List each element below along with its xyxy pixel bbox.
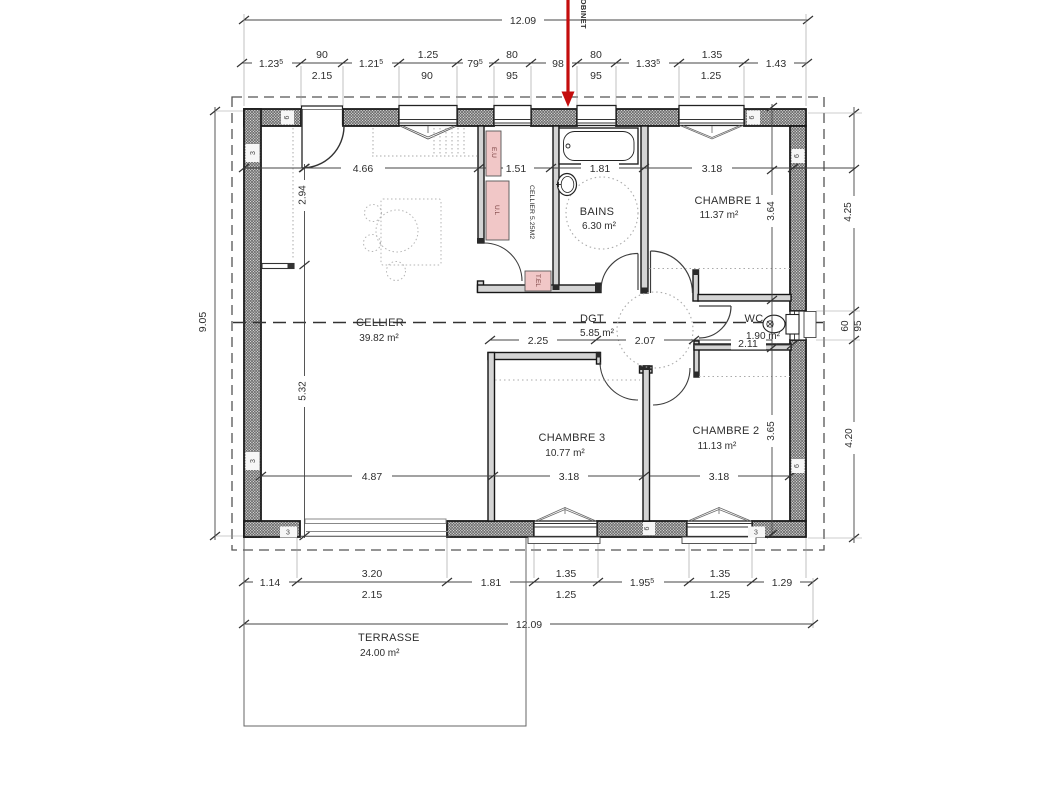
svg-text:1.90 m²: 1.90 m² [746,331,781,342]
svg-text:6: 6 [794,154,801,158]
svg-text:80: 80 [506,49,518,61]
svg-text:95: 95 [590,70,602,82]
svg-text:12.09: 12.09 [516,619,542,631]
svg-text:WC: WC [745,313,764,325]
svg-text:4.87: 4.87 [362,471,383,483]
svg-text:DGT: DGT [580,313,604,325]
svg-text:1.25: 1.25 [701,70,722,82]
svg-text:95: 95 [853,320,864,332]
svg-text:11.37 m²: 11.37 m² [700,210,739,221]
svg-text:9.05: 9.05 [197,312,209,333]
svg-text:6.30 m²: 6.30 m² [582,221,617,232]
svg-text:3.65: 3.65 [766,421,777,441]
svg-text:3.18: 3.18 [559,471,580,483]
svg-text:CELLIER 5.25M2: CELLIER 5.25M2 [528,185,535,239]
svg-text:24.00 m²: 24.00 m² [360,648,400,659]
svg-text:2.07: 2.07 [635,335,656,347]
svg-text:3.20: 3.20 [362,568,383,580]
svg-text:90: 90 [421,70,433,82]
svg-text:6: 6 [284,115,291,119]
svg-text:3.18: 3.18 [702,163,723,175]
svg-text:3: 3 [250,459,257,463]
svg-text:CELLIER: CELLIER [356,317,404,329]
svg-text:1.43: 1.43 [766,58,787,70]
svg-text:98: 98 [552,58,564,70]
svg-text:90: 90 [316,49,328,61]
svg-text:CHAMBRE 3: CHAMBRE 3 [539,432,606,444]
svg-text:95: 95 [506,70,518,82]
svg-text:4.25: 4.25 [843,202,854,222]
svg-text:6: 6 [644,526,651,530]
svg-text:12.09: 12.09 [510,15,536,27]
svg-text:6: 6 [794,464,801,468]
svg-text:1.25: 1.25 [710,589,731,601]
svg-text:5.32: 5.32 [298,381,309,401]
svg-text:2.94: 2.94 [298,185,309,205]
svg-text:ROBINET: ROBINET [579,0,588,29]
svg-text:CHAMBRE 1: CHAMBRE 1 [695,195,762,207]
svg-text:3: 3 [286,530,290,537]
svg-text:2.15: 2.15 [312,70,333,82]
svg-text:10.77 m²: 10.77 m² [545,448,585,459]
svg-text:5.85 m²: 5.85 m² [580,328,615,339]
svg-text:11.13 m²: 11.13 m² [698,441,737,452]
svg-text:80: 80 [590,49,602,61]
svg-text:1.51: 1.51 [506,163,527,175]
svg-text:1.25: 1.25 [556,589,577,601]
svg-text:60: 60 [840,320,851,332]
svg-text:3: 3 [754,530,758,537]
svg-text:BAINS: BAINS [580,206,615,218]
svg-text:CHAMBRE 2: CHAMBRE 2 [693,425,760,437]
svg-text:6: 6 [749,115,756,119]
svg-text:2.25: 2.25 [528,335,549,347]
svg-text:39.82 m²: 39.82 m² [359,333,399,344]
svg-text:TERRASSE: TERRASSE [358,632,420,644]
svg-text:2.15: 2.15 [362,589,383,601]
svg-text:1.29: 1.29 [772,577,793,589]
svg-text:1.35: 1.35 [710,568,731,580]
svg-text:3.18: 3.18 [709,471,730,483]
svg-text:U.L: U.L [493,205,500,216]
svg-text:1.25: 1.25 [418,49,439,61]
svg-text:T.EL: T.EL [534,274,541,287]
svg-text:1.14: 1.14 [260,577,281,589]
svg-text:4.66: 4.66 [353,163,374,175]
svg-text:1.81: 1.81 [481,577,502,589]
svg-text:E.U: E.U [490,147,497,158]
svg-text:1.35: 1.35 [556,568,577,580]
svg-text:4.20: 4.20 [844,428,855,448]
svg-text:3: 3 [250,151,257,155]
svg-text:1.35: 1.35 [702,49,723,61]
svg-text:1.81: 1.81 [590,163,611,175]
svg-text:3.64: 3.64 [766,201,777,221]
